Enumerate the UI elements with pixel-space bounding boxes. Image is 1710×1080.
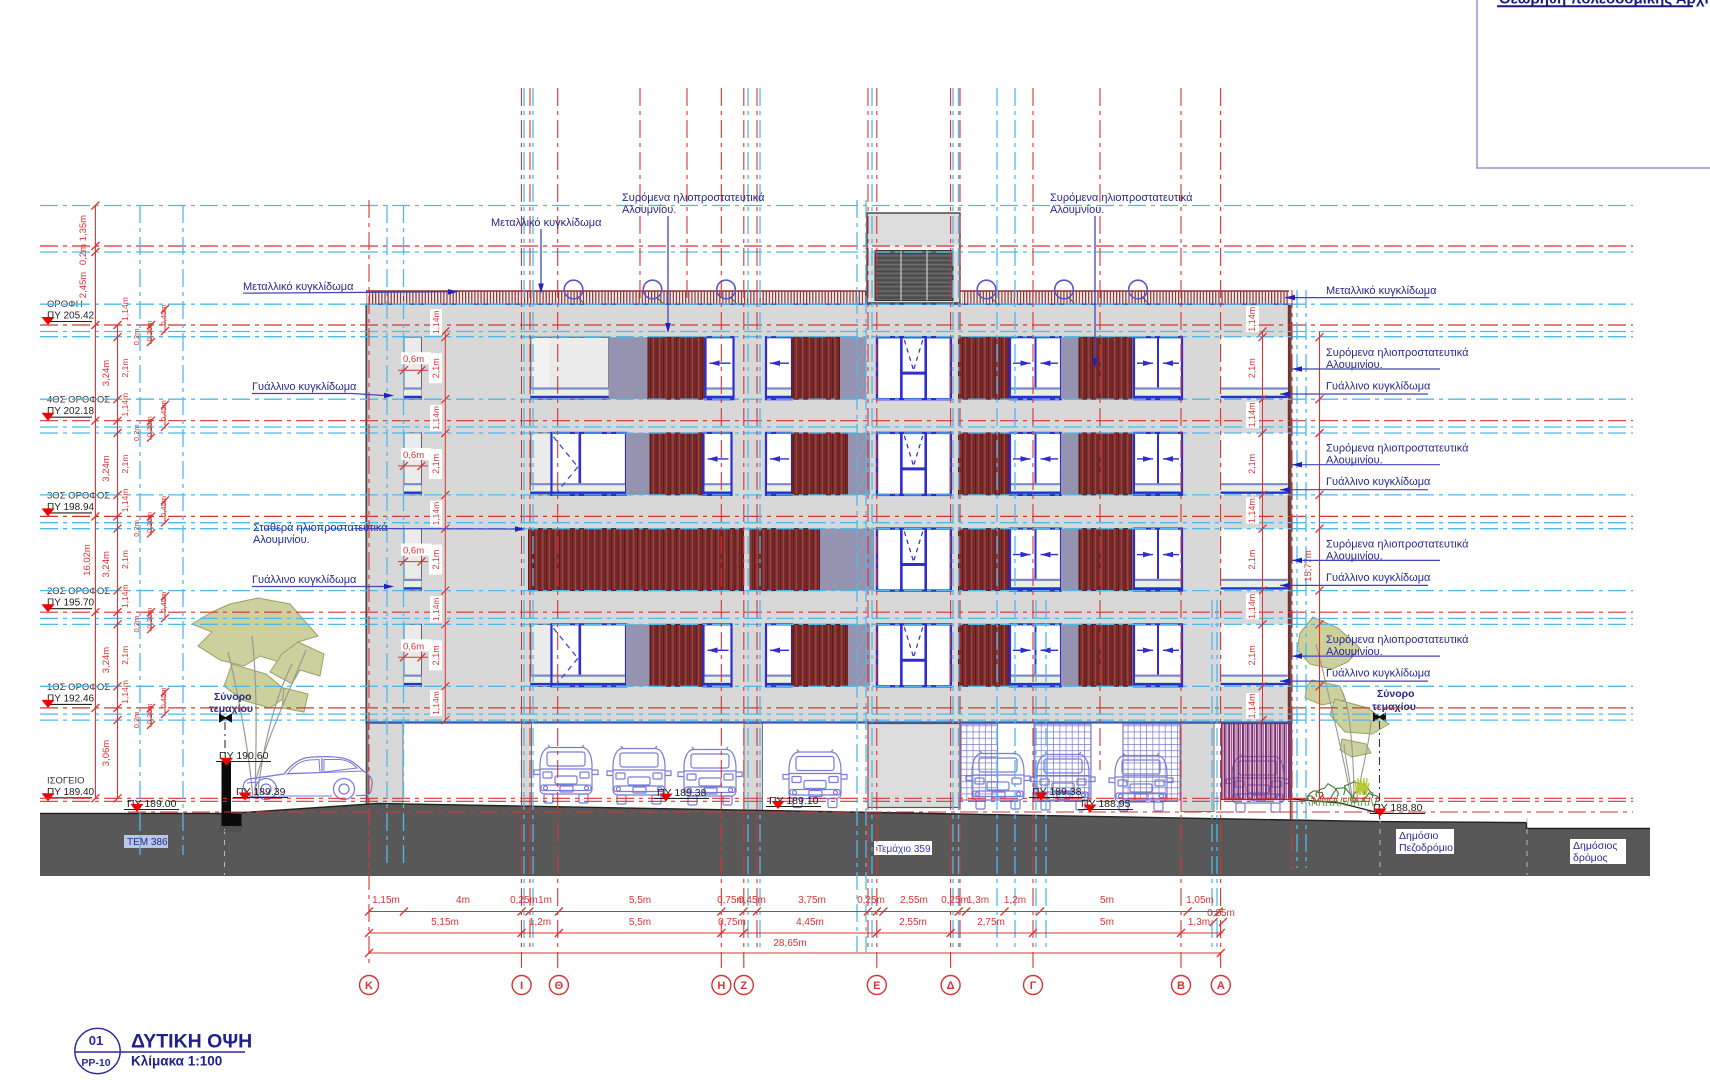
svg-text:0,25m: 0,25m xyxy=(510,895,538,906)
svg-text:Α: Α xyxy=(1217,980,1225,992)
svg-text:2,55m: 2,55m xyxy=(899,917,927,928)
svg-text:0,2m: 0,2m xyxy=(132,520,141,537)
svg-text:Συρόμενα ηλιοπροστατευτικά: Συρόμενα ηλιοπροστατευτικά xyxy=(1326,347,1469,359)
svg-text:5m: 5m xyxy=(1100,895,1114,906)
svg-text:2,1m: 2,1m xyxy=(120,646,130,665)
svg-text:Συρόμενα ηλιοπροστατευτικά: Συρόμενα ηλιοπροστατευτικά xyxy=(1326,443,1469,455)
svg-text:16,02m: 16,02m xyxy=(82,544,93,576)
svg-text:28,65m: 28,65m xyxy=(773,938,806,949)
svg-text:2,1m: 2,1m xyxy=(431,358,441,378)
svg-text:3,24m: 3,24m xyxy=(101,360,112,386)
svg-text:ΔΥΤΙΚΗ ΟΨΗ: ΔΥΤΙΚΗ ΟΨΗ xyxy=(131,1031,252,1053)
svg-text:1,14m: 1,14m xyxy=(431,406,441,430)
svg-text:ΠΥ 198.94: ΠΥ 198.94 xyxy=(47,502,95,513)
svg-text:2,1m: 2,1m xyxy=(1247,550,1257,570)
svg-text:1,14m: 1,14m xyxy=(431,502,441,526)
svg-text:2,1m: 2,1m xyxy=(431,645,441,665)
svg-text:0,25m: 0,25m xyxy=(857,895,885,906)
svg-text:δρόμος: δρόμος xyxy=(1573,852,1608,864)
svg-text:0,2m: 0,2m xyxy=(132,424,141,441)
svg-text:3,24m: 3,24m xyxy=(101,551,112,577)
svg-text:2,1m: 2,1m xyxy=(1247,645,1257,665)
svg-text:Β: Β xyxy=(1177,980,1185,992)
svg-text:Γυάλλινο κυγκλίδωμα: Γυάλλινο κυγκλίδωμα xyxy=(1326,572,1431,584)
svg-text:1,14m: 1,14m xyxy=(120,297,130,321)
svg-text:1m: 1m xyxy=(538,895,552,906)
svg-text:15,77m: 15,77m xyxy=(1303,550,1314,582)
svg-text:Δημόσιος: Δημόσιος xyxy=(1573,840,1617,852)
svg-text:Θ: Θ xyxy=(555,980,564,992)
svg-text:Ι: Ι xyxy=(520,980,523,992)
svg-text:1,05m: 1,05m xyxy=(1186,895,1214,906)
svg-text:1,14m: 1,14m xyxy=(1247,498,1257,523)
svg-text:5m: 5m xyxy=(1100,917,1114,928)
svg-text:0,6m: 0,6m xyxy=(403,450,424,461)
svg-text:Ζ: Ζ xyxy=(740,980,747,992)
svg-text:Συρόμενα ηλιοπροστατευτικά: Συρόμενα ηλιοπροστατευτικά xyxy=(1326,634,1469,646)
svg-text:Ε: Ε xyxy=(873,980,880,992)
svg-text:Συρόμενα ηλιοπροστατευτικά: Συρόμενα ηλιοπροστατευτικά xyxy=(1326,538,1469,550)
svg-text:2,1m: 2,1m xyxy=(1247,358,1257,378)
svg-text:1,14m: 1,14m xyxy=(120,489,130,513)
svg-text:Πεζοδρόμιο: Πεζοδρόμιο xyxy=(1399,842,1453,854)
svg-text:0,2m: 0,2m xyxy=(132,616,141,633)
svg-text:3,06m: 3,06m xyxy=(101,740,112,766)
svg-text:Γυάλλινο κυγκλίδωμα: Γυάλλινο κυγκλίδωμα xyxy=(1326,381,1431,393)
svg-text:ΠΥ 202.18: ΠΥ 202.18 xyxy=(47,406,95,417)
svg-text:2,1m: 2,1m xyxy=(120,359,130,378)
svg-text:4,45m: 4,45m xyxy=(796,917,824,928)
svg-text:1,14m: 1,14m xyxy=(1247,693,1257,718)
svg-text:0,25m: 0,25m xyxy=(941,895,969,906)
svg-text:2,1m: 2,1m xyxy=(431,550,441,570)
svg-text:0,75m: 0,75m xyxy=(718,917,746,928)
svg-text:Μεταλλικό κυγκλίδωμα: Μεταλλικό κυγκλίδωμα xyxy=(243,281,354,293)
svg-text:2,1m: 2,1m xyxy=(1247,454,1257,474)
svg-text:Αλουμινίου.: Αλουμινίου. xyxy=(253,534,310,546)
svg-text:5,15m: 5,15m xyxy=(431,917,459,928)
svg-text:Γυάλλινο κυγκλίδωμα: Γυάλλινο κυγκλίδωμα xyxy=(1326,476,1431,488)
svg-text:1,14m: 1,14m xyxy=(1247,402,1257,427)
svg-text:0,2m: 0,2m xyxy=(132,329,141,346)
svg-text:ΙΣΟΓΕΙΟ: ΙΣΟΓΕΙΟ xyxy=(47,775,85,786)
svg-text:Κλίμακα 1:100: Κλίμακα 1:100 xyxy=(131,1054,222,1069)
svg-text:Σύνορο: Σύνορο xyxy=(214,691,252,703)
svg-text:τεμαχίου: τεμαχίου xyxy=(1372,701,1416,713)
svg-text:3ΟΣ ΟΡΟΦΟΣ: 3ΟΣ ΟΡΟΦΟΣ xyxy=(47,490,110,501)
svg-text:4m: 4m xyxy=(456,895,470,906)
svg-text:ΠΥ 205.42: ΠΥ 205.42 xyxy=(47,311,95,322)
svg-text:2,1m: 2,1m xyxy=(120,550,130,569)
svg-text:5,5m: 5,5m xyxy=(629,917,651,928)
svg-text:5,5m: 5,5m xyxy=(629,895,651,906)
svg-text:0,2m 1,35m: 0,2m 1,35m xyxy=(78,215,89,265)
svg-text:2,55m: 2,55m xyxy=(900,895,928,906)
svg-text:PP-10: PP-10 xyxy=(81,1057,110,1069)
svg-text:Γυάλλινο κυγκλίδωμα: Γυάλλινο κυγκλίδωμα xyxy=(252,574,357,586)
svg-text:2,75m: 2,75m xyxy=(977,917,1005,928)
svg-text:Συρόμενα ηλιοπροστατευτικά: Συρόμενα ηλιοπροστατευτικά xyxy=(622,192,765,204)
svg-text:ΤΕΜ 386: ΤΕΜ 386 xyxy=(127,837,168,848)
svg-text:Γυάλλινο κυγκλίδωμα: Γυάλλινο κυγκλίδωμα xyxy=(252,381,357,393)
svg-text:ΠΥ 192.46: ΠΥ 192.46 xyxy=(47,693,95,704)
svg-text:1,14m: 1,14m xyxy=(431,691,441,715)
svg-text:1,14m: 1,14m xyxy=(120,584,130,608)
svg-text:0,6m: 0,6m xyxy=(403,546,424,557)
svg-text:1,14m: 1,14m xyxy=(120,393,130,417)
svg-text:2,45m: 2,45m xyxy=(78,272,89,298)
svg-text:1,2m: 1,2m xyxy=(1004,895,1026,906)
svg-text:Γ: Γ xyxy=(1030,980,1037,992)
svg-text:3,75m: 3,75m xyxy=(798,895,826,906)
svg-text:τεμαχίου: τεμαχίου xyxy=(209,703,253,715)
svg-text:Η: Η xyxy=(717,980,725,992)
svg-text:Σύνορο: Σύνορο xyxy=(1377,688,1415,700)
svg-text:2,1m: 2,1m xyxy=(431,454,441,474)
svg-text:Αλουμνίου.: Αλουμνίου. xyxy=(1050,204,1104,216)
svg-text:0,25m: 0,25m xyxy=(1207,908,1235,919)
svg-text:3,24m: 3,24m xyxy=(101,647,112,673)
svg-text:Μεταλλικό κυγκλίδωμα: Μεταλλικό κυγκλίδωμα xyxy=(491,217,602,229)
svg-text:1,14m: 1,14m xyxy=(120,680,130,704)
svg-text:0,6m: 0,6m xyxy=(403,641,424,652)
svg-text:4ΟΣ ΟΡΟΦΟΣ: 4ΟΣ ΟΡΟΦΟΣ xyxy=(47,395,110,406)
svg-text:Δημόσιο: Δημόσιο xyxy=(1399,830,1439,842)
svg-text:Δ: Δ xyxy=(947,980,955,992)
svg-text:2,1m: 2,1m xyxy=(120,455,130,474)
svg-text:Αλουμνίου.: Αλουμνίου. xyxy=(622,204,676,216)
svg-text:1ΟΣ ΟΡΟΦΟΣ: 1ΟΣ ΟΡΟΦΟΣ xyxy=(47,682,110,693)
svg-text:3,24m: 3,24m xyxy=(101,455,112,481)
svg-text:0,2m: 0,2m xyxy=(132,712,141,729)
svg-text:1,14m: 1,14m xyxy=(1247,307,1257,332)
svg-text:Μεταλλικό κυγκλίδωμα: Μεταλλικό κυγκλίδωμα xyxy=(1326,285,1437,297)
svg-text:1,3m: 1,3m xyxy=(967,895,989,906)
svg-text:1,2m: 1,2m xyxy=(529,917,551,928)
svg-text:2ΟΣ ΟΡΟΦΟΣ: 2ΟΣ ΟΡΟΦΟΣ xyxy=(47,586,110,597)
svg-text:1,14m: 1,14m xyxy=(431,310,441,334)
svg-text:1,14m: 1,14m xyxy=(431,597,441,621)
svg-text:Κ: Κ xyxy=(365,980,373,992)
svg-text:Γυάλλινο κυγκλίδωμα: Γυάλλινο κυγκλίδωμα xyxy=(1326,668,1431,680)
svg-text:0,45m: 0,45m xyxy=(738,895,766,906)
svg-text:Τεμάχιο 359: Τεμάχιο 359 xyxy=(877,843,931,855)
svg-text:1,14m: 1,14m xyxy=(1247,594,1257,619)
svg-text:Συρόμενα ηλιοπροστατευτικά: Συρόμενα ηλιοπροστατευτικά xyxy=(1050,192,1193,204)
svg-text:ΠΥ 195.70: ΠΥ 195.70 xyxy=(47,598,95,609)
svg-text:01: 01 xyxy=(89,1033,103,1048)
svg-text:1,15m: 1,15m xyxy=(372,895,400,906)
svg-text:ΠΥ 189.40: ΠΥ 189.40 xyxy=(47,787,95,798)
svg-text:0,6m: 0,6m xyxy=(403,354,424,365)
